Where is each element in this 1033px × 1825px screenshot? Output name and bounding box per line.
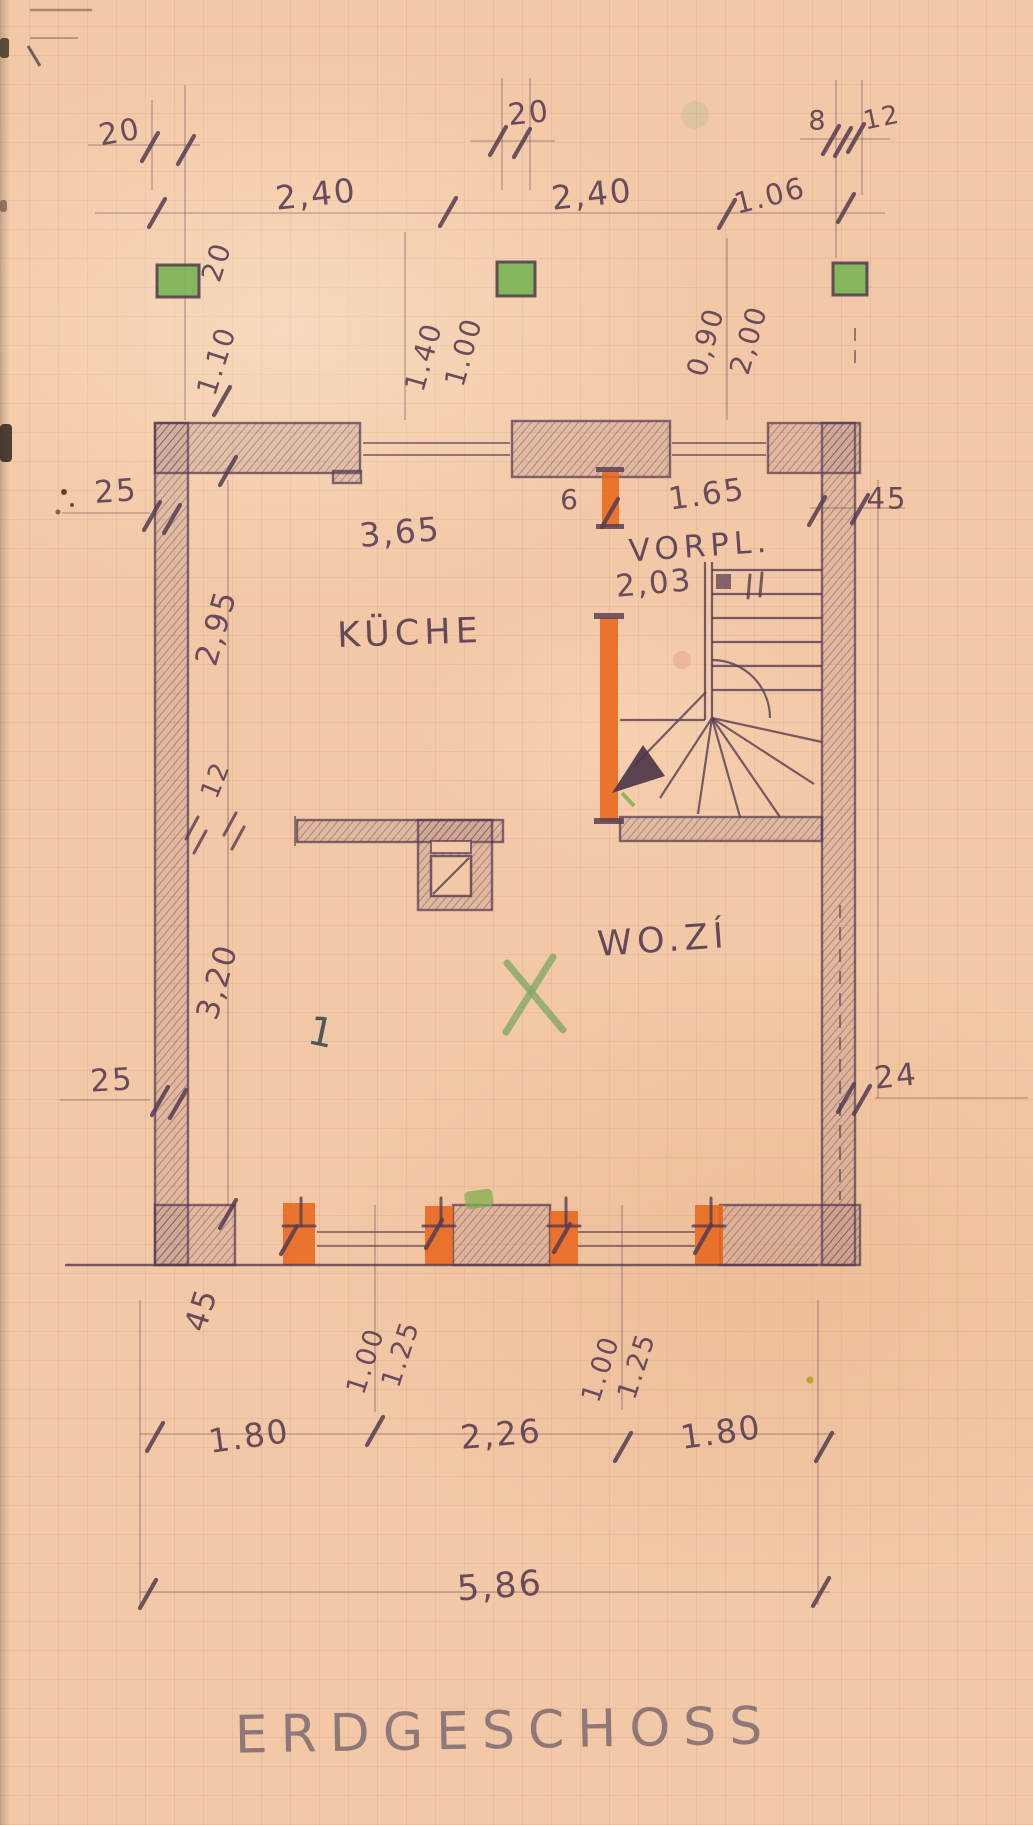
dim-100-top-vert: 1.00 <box>441 314 487 389</box>
dim-586-bottom: 5,86 <box>456 1567 544 1608</box>
dim-110-left-vert: 1.10 <box>193 323 241 399</box>
dim-365-kueche: 3,65 <box>358 512 442 552</box>
dim-106-top: 1.06 <box>731 173 808 219</box>
dim-165-vorplatz: 1.65 <box>667 474 748 515</box>
dim-240-top-right: 2,40 <box>550 173 634 214</box>
dim-200-top-vert: 2,00 <box>726 302 772 377</box>
annotation-layer: 202,40202,401.06812201.101.401.000,902,0… <box>0 0 1033 1825</box>
dim-20-top-mid: 20 <box>506 97 551 131</box>
dim-8-top: 8 <box>808 108 827 135</box>
dim-240-top-left: 2,40 <box>274 173 358 214</box>
dim-20-upper-left-vert: 20 <box>198 239 237 285</box>
dim-125-bottom-left-vert: 1.25 <box>378 1317 425 1390</box>
room-label-kueche: KÜCHE <box>337 614 484 654</box>
floor-plan-paper: 202,40202,401.06812201.101.401.000,902,0… <box>0 0 1033 1825</box>
area-vorplatz: 2,03 <box>614 565 693 603</box>
dim-25-lower-left: 25 <box>89 1064 134 1097</box>
dim-140-top-vert: 1.40 <box>401 319 447 394</box>
dim-20-top-left: 20 <box>97 115 144 152</box>
pen-mark-1: 1 <box>304 1011 339 1056</box>
room-label-vorplatz: VORPL. <box>628 527 772 568</box>
dim-12-top: 12 <box>861 101 903 134</box>
dim-45-lower-left-vert: 45 <box>181 1285 224 1336</box>
dim-180-bottom-right: 1.80 <box>678 1410 763 1454</box>
dim-226-bottom: 2,26 <box>459 1414 543 1454</box>
dim-45-upper-right: 45 <box>867 485 908 514</box>
dim-320-left-vert: 3,20 <box>192 941 243 1024</box>
dim-25-upper-left: 25 <box>93 475 139 509</box>
dim-6-door: 6 <box>560 486 580 514</box>
room-label-wohnzimmer: WO.ZÍ <box>596 919 729 963</box>
dim-180-bottom-left: 1.80 <box>206 1414 291 1458</box>
plan-title-erdgeschoss: ERDGESCHOSS <box>234 1700 775 1761</box>
dim-24-lower-right: 24 <box>873 1059 919 1094</box>
dim-295-left-vert: 2,95 <box>191 587 242 670</box>
dim-12-left-vert: 12 <box>197 758 235 802</box>
